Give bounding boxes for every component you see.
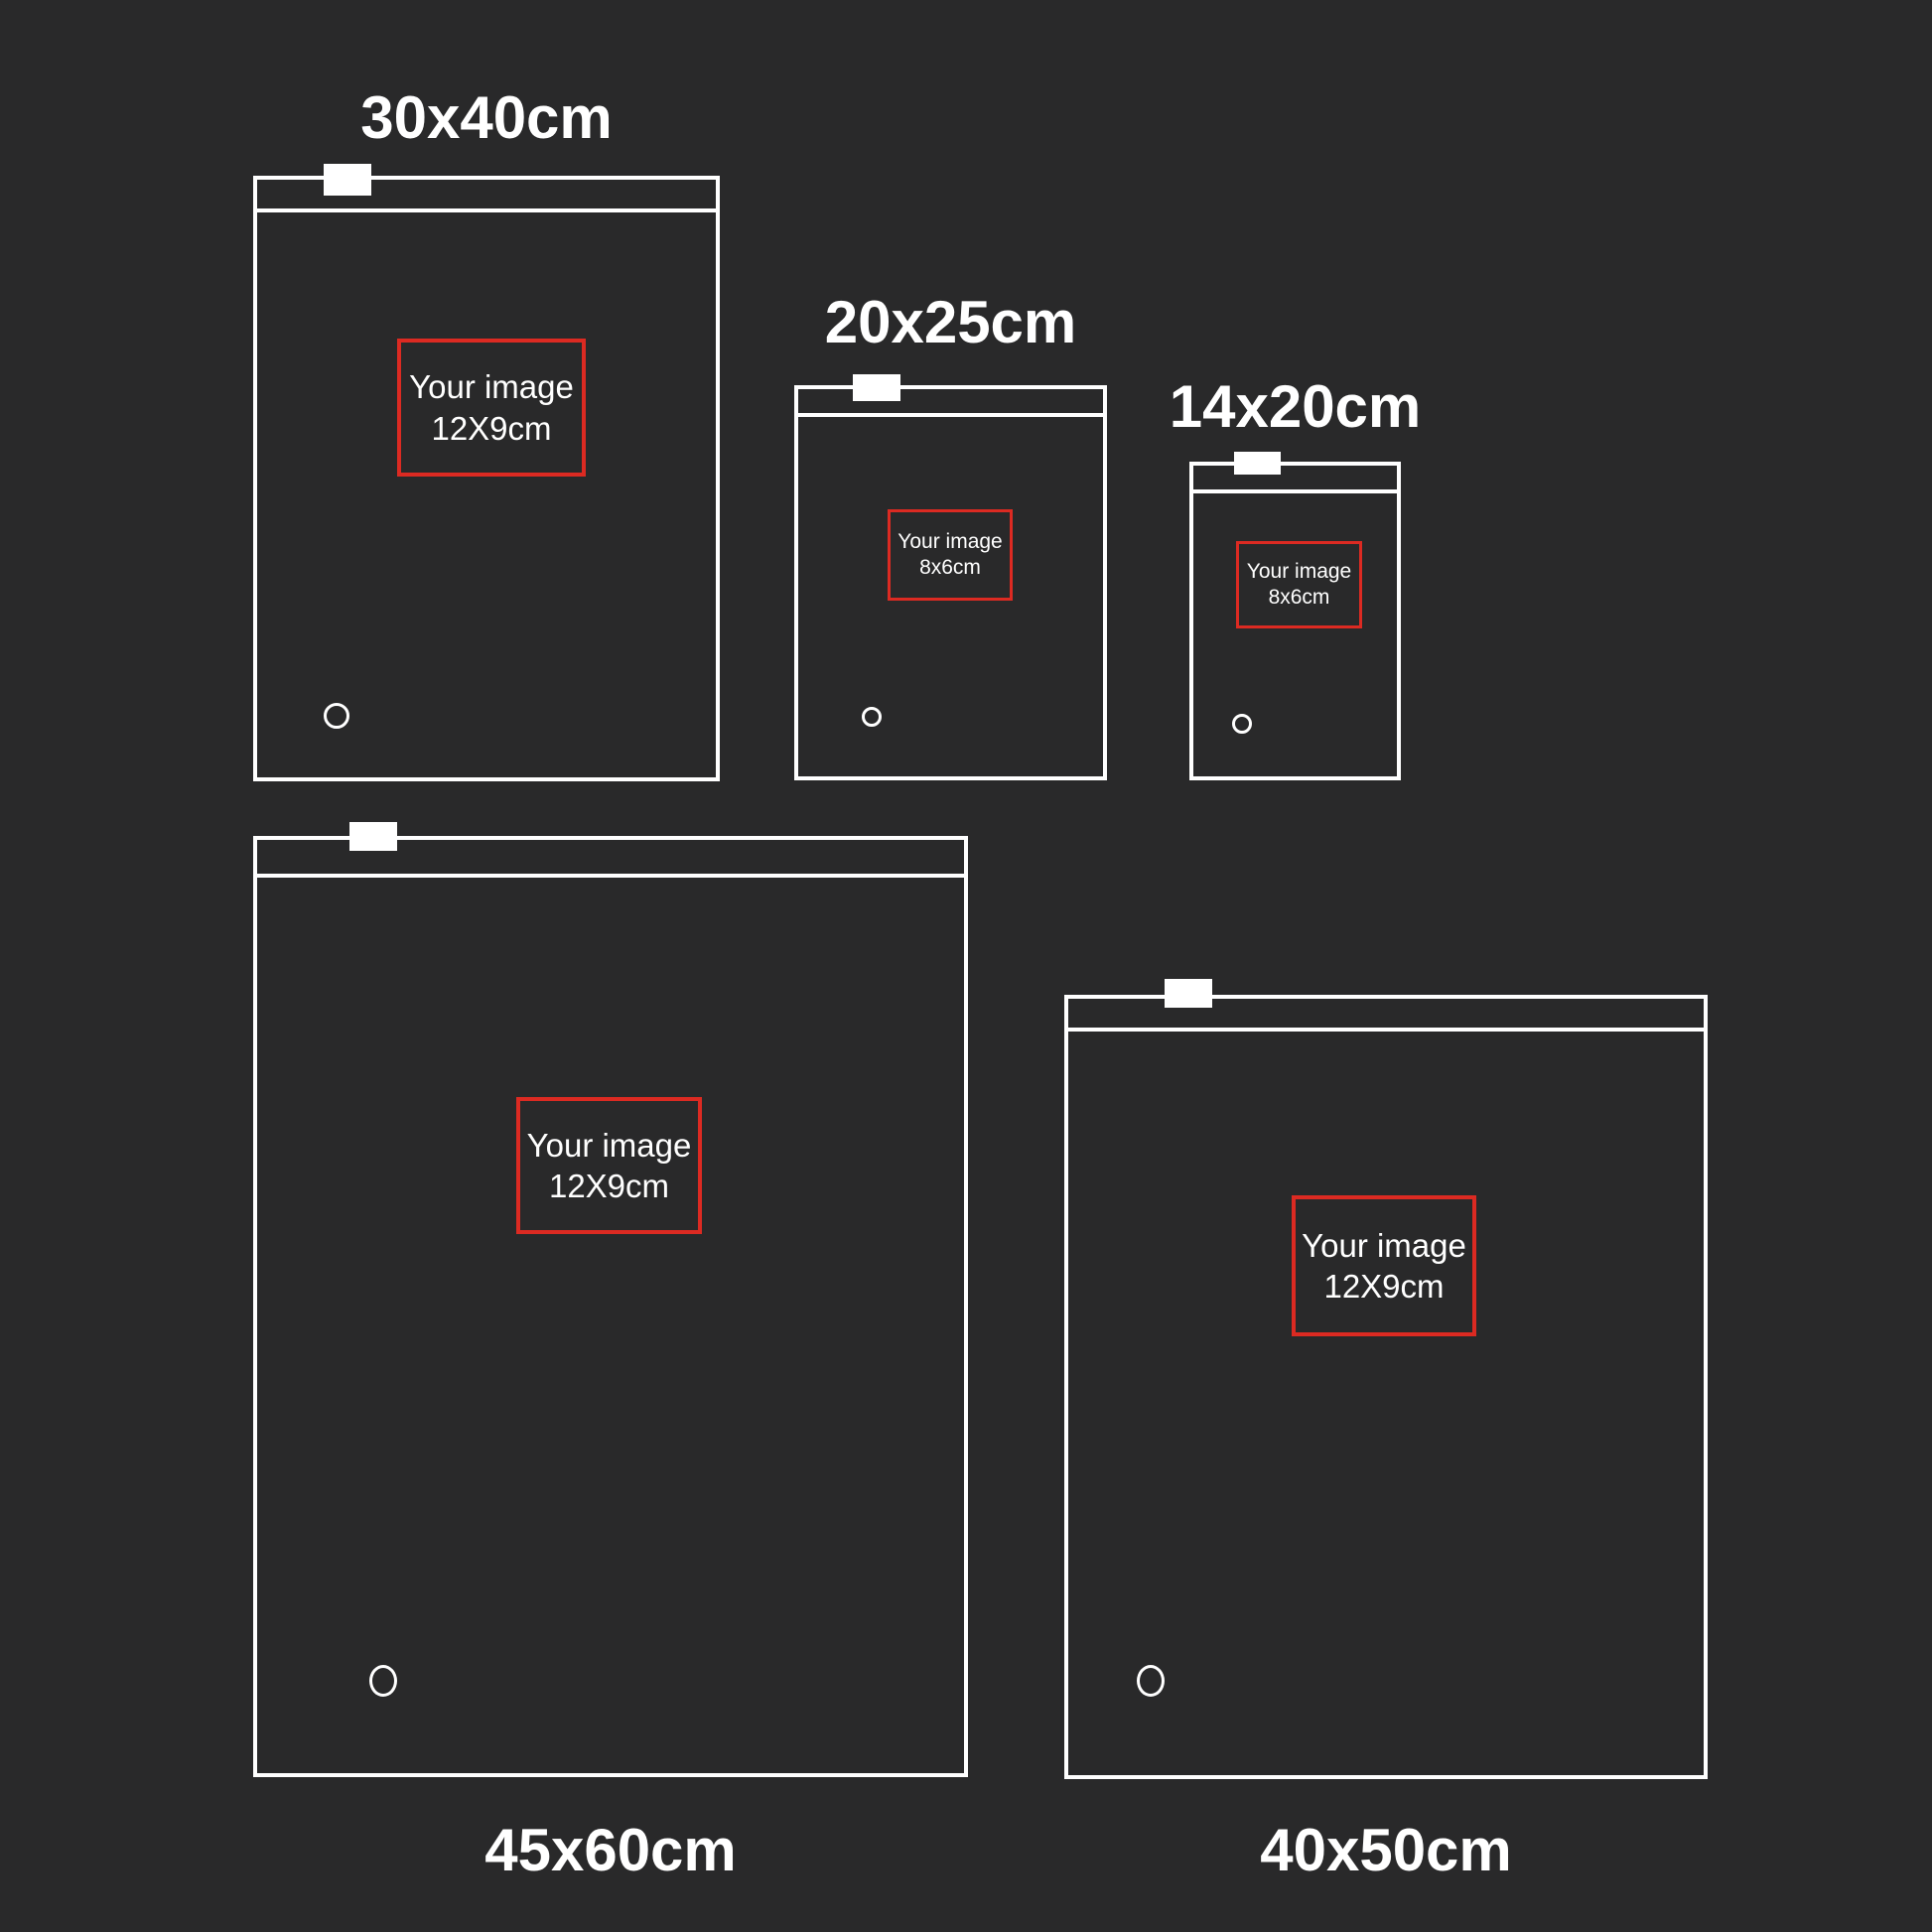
- zipper-slider-tab: [1234, 452, 1281, 475]
- image-placeholder-line2: 12X9cm: [431, 408, 551, 449]
- bag-outline: Your image 8x6cm: [794, 385, 1107, 780]
- image-placeholder-line1: Your image: [409, 366, 574, 407]
- image-placeholder-box: Your image 8x6cm: [888, 509, 1013, 601]
- image-placeholder-box: Your image 12X9cm: [397, 339, 586, 477]
- image-placeholder-line2: 8x6cm: [1269, 585, 1330, 611]
- image-placeholder-box: Your image 8x6cm: [1236, 541, 1362, 628]
- image-placeholder-line1: Your image: [527, 1125, 692, 1166]
- image-placeholder-line2: 12X9cm: [549, 1166, 669, 1206]
- bag-40x50cm: 40x50cm Your image 12X9cm: [1064, 995, 1708, 1779]
- zipper-slider-tab: [324, 164, 371, 196]
- zipper-seam-line: [1068, 1028, 1704, 1032]
- hang-hole: [369, 1665, 397, 1697]
- image-placeholder-line1: Your image: [1247, 559, 1351, 585]
- image-placeholder-line1: Your image: [1302, 1225, 1466, 1266]
- bag-45x60cm: 45x60cm Your image 12X9cm: [253, 836, 968, 1777]
- zipper-seam-line: [798, 413, 1103, 417]
- hang-hole: [324, 703, 349, 729]
- image-placeholder-line2: 8x6cm: [919, 555, 981, 581]
- hang-hole: [862, 707, 882, 727]
- zipper-slider-tab: [1165, 979, 1212, 1008]
- bag-14x20cm: 14x20cm Your image 8x6cm: [1189, 462, 1401, 780]
- zipper-seam-line: [257, 874, 964, 878]
- bag-outline: Your image 12X9cm: [253, 836, 968, 1777]
- bag-size-label: 45x60cm: [484, 1821, 737, 1880]
- bag-size-chart: 30x40cm Your image 12X9cm 20x25cm Your i…: [0, 0, 1932, 1932]
- image-placeholder-line2: 12X9cm: [1323, 1266, 1444, 1307]
- bag-size-label: 40x50cm: [1260, 1821, 1512, 1880]
- zipper-slider-tab: [853, 374, 900, 401]
- image-placeholder-box: Your image 12X9cm: [1292, 1195, 1476, 1336]
- zipper-seam-line: [1193, 489, 1397, 493]
- bag-30x40cm: 30x40cm Your image 12X9cm: [253, 176, 720, 781]
- image-placeholder-box: Your image 12X9cm: [516, 1097, 702, 1234]
- bag-20x25cm: 20x25cm Your image 8x6cm: [794, 385, 1107, 780]
- hang-hole: [1137, 1665, 1165, 1697]
- bag-size-label: 20x25cm: [825, 293, 1077, 352]
- image-placeholder-line1: Your image: [897, 529, 1002, 555]
- bag-outline: Your image 12X9cm: [253, 176, 720, 781]
- zipper-slider-tab: [349, 822, 397, 851]
- bag-outline: Your image 8x6cm: [1189, 462, 1401, 780]
- bag-size-label: 30x40cm: [360, 88, 613, 148]
- zipper-seam-line: [257, 208, 716, 212]
- hang-hole: [1232, 714, 1252, 734]
- bag-outline: Your image 12X9cm: [1064, 995, 1708, 1779]
- bag-size-label: 14x20cm: [1170, 377, 1422, 437]
